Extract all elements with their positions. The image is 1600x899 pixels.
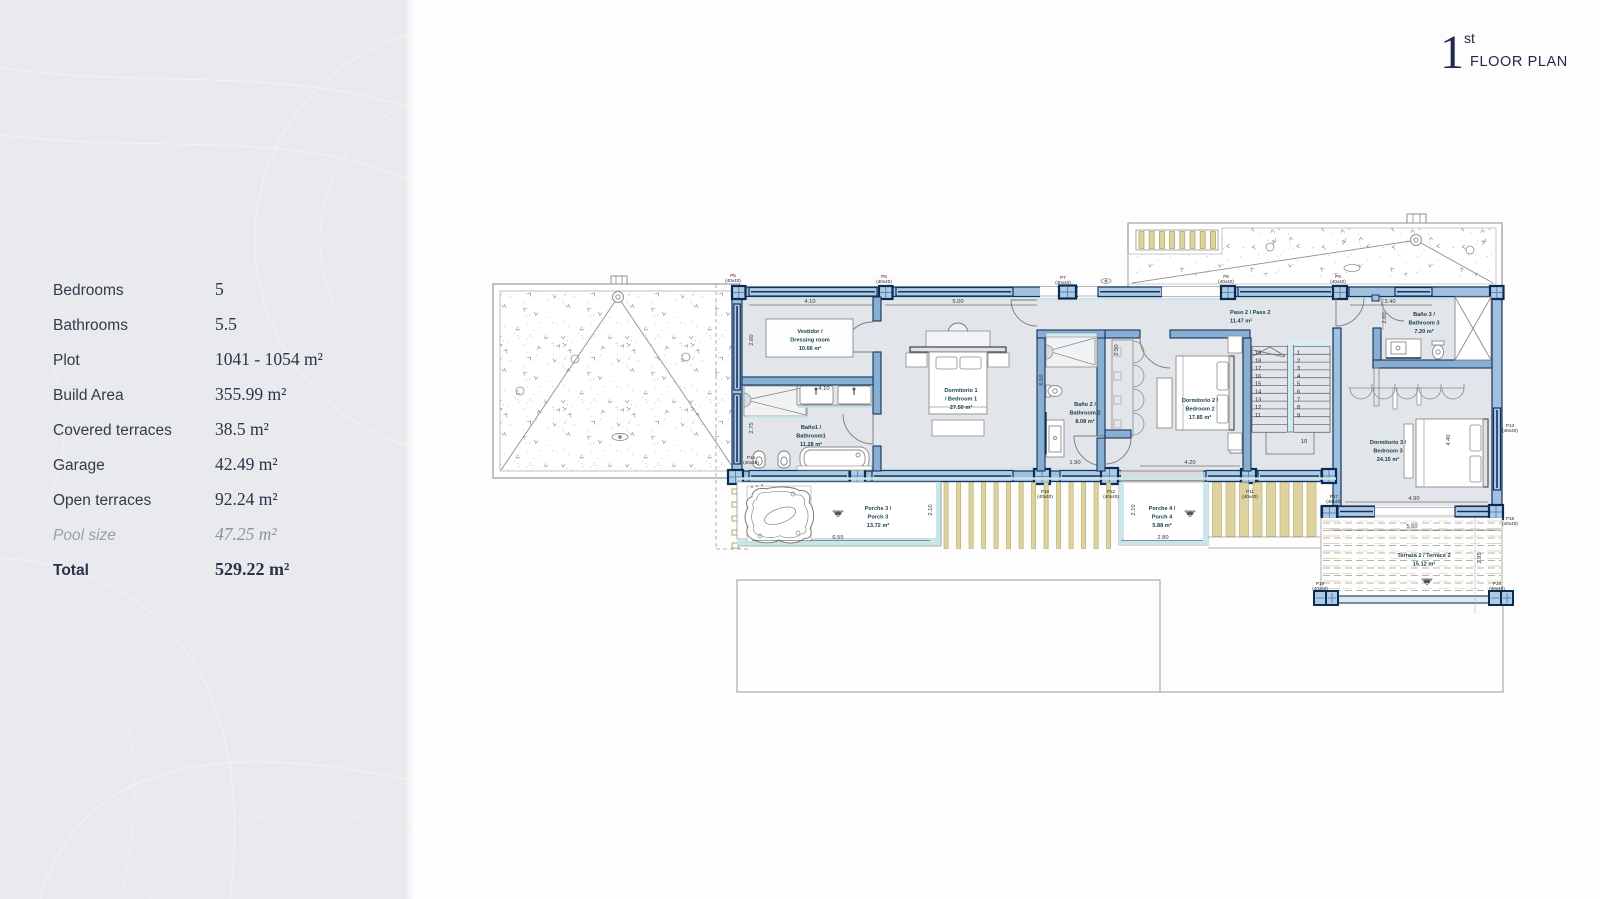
svg-text:11.28 m²: 11.28 m² bbox=[800, 441, 822, 448]
svg-text:7: 7 bbox=[1297, 397, 1300, 403]
svg-text:4.90: 4.90 bbox=[1408, 496, 1419, 502]
svg-text:Open terraces: Open terraces bbox=[53, 492, 151, 509]
svg-text:Bathroom1: Bathroom1 bbox=[796, 434, 826, 440]
svg-text:6.55: 6.55 bbox=[832, 535, 843, 541]
svg-text:1: 1 bbox=[1440, 26, 1464, 79]
svg-text:5: 5 bbox=[1297, 382, 1300, 388]
svg-text:12: 12 bbox=[1255, 405, 1261, 411]
svg-text:Covered terraces: Covered terraces bbox=[53, 422, 172, 439]
svg-text:(40x40): (40x40) bbox=[1103, 494, 1119, 499]
svg-text:Dormitorio 1: Dormitorio 1 bbox=[944, 388, 977, 394]
svg-text:(40x40): (40x40) bbox=[1502, 428, 1518, 433]
svg-text:10.66 m²: 10.66 m² bbox=[799, 345, 822, 352]
svg-text:8: 8 bbox=[1297, 405, 1300, 411]
svg-text:1.90: 1.90 bbox=[1069, 460, 1080, 466]
svg-text:4.40: 4.40 bbox=[1446, 434, 1452, 445]
svg-text:Build Area: Build Area bbox=[53, 387, 124, 404]
svg-text:355.99 m²: 355.99 m² bbox=[215, 384, 286, 404]
svg-text:(40x40): (40x40) bbox=[1055, 280, 1071, 285]
svg-text:Garage: Garage bbox=[53, 457, 105, 474]
svg-text:(40x40): (40x40) bbox=[1037, 494, 1053, 499]
svg-text:1041 - 1054 m²: 1041 - 1054 m² bbox=[215, 349, 323, 369]
svg-text:27.50 m²: 27.50 m² bbox=[950, 404, 973, 411]
svg-text:Vestidor /: Vestidor / bbox=[797, 329, 823, 335]
svg-text:2.75: 2.75 bbox=[749, 422, 755, 433]
svg-text:st: st bbox=[1464, 30, 1475, 46]
svg-text:92.24 m²: 92.24 m² bbox=[215, 489, 278, 509]
svg-text:8.08 m²: 8.08 m² bbox=[1075, 418, 1094, 425]
svg-text:(40x40): (40x40) bbox=[743, 460, 759, 465]
svg-text:4.10: 4.10 bbox=[818, 386, 829, 392]
svg-text:11: 11 bbox=[1255, 413, 1261, 419]
svg-text:5.00: 5.00 bbox=[952, 299, 963, 305]
svg-text:4: 4 bbox=[1297, 374, 1300, 380]
svg-text:Paso 2 / Pass 2: Paso 2 / Pass 2 bbox=[1230, 310, 1270, 316]
svg-text:Dormitorio 3 /: Dormitorio 3 / bbox=[1370, 440, 1407, 446]
svg-text:47.25 m²: 47.25 m² bbox=[215, 524, 277, 544]
svg-text:18: 18 bbox=[1255, 358, 1261, 364]
svg-text:529.22 m²: 529.22 m² bbox=[215, 559, 289, 579]
svg-text:13: 13 bbox=[1255, 397, 1261, 403]
svg-text:13.72 m²: 13.72 m² bbox=[867, 522, 890, 529]
svg-text:Total: Total bbox=[53, 562, 89, 579]
svg-text:16: 16 bbox=[1255, 374, 1261, 380]
svg-text:11.47 m²: 11.47 m² bbox=[1230, 318, 1252, 325]
svg-text:(40x40): (40x40) bbox=[1242, 494, 1258, 499]
svg-text:17: 17 bbox=[1255, 366, 1261, 372]
svg-text:1: 1 bbox=[1297, 351, 1300, 357]
svg-text:(40x40): (40x40) bbox=[1326, 499, 1342, 504]
svg-text:2.10: 2.10 bbox=[1131, 504, 1137, 515]
svg-text:2.80: 2.80 bbox=[1157, 535, 1168, 541]
svg-text:2.50: 2.50 bbox=[1114, 344, 1120, 355]
svg-text:Porche 4 /: Porche 4 / bbox=[1149, 506, 1176, 512]
svg-text:Baño1 /: Baño1 / bbox=[801, 425, 822, 431]
svg-text:Bedroom 2: Bedroom 2 bbox=[1185, 407, 1214, 413]
svg-text:(40x40): (40x40) bbox=[1489, 586, 1505, 591]
svg-text:(40x40): (40x40) bbox=[1330, 279, 1346, 284]
svg-text:(40x40): (40x40) bbox=[1312, 586, 1328, 591]
svg-text:(40x40): (40x40) bbox=[1218, 279, 1234, 284]
svg-text:6.50: 6.50 bbox=[1039, 374, 1045, 385]
svg-text:3.40: 3.40 bbox=[1384, 299, 1395, 305]
svg-text:14: 14 bbox=[1255, 390, 1261, 396]
svg-text:Bathroom 3: Bathroom 3 bbox=[1408, 321, 1439, 327]
svg-text:2.60: 2.60 bbox=[749, 334, 755, 345]
svg-text:3: 3 bbox=[1297, 366, 1300, 372]
svg-text:Porch 3: Porch 3 bbox=[868, 515, 889, 521]
svg-text:(40x40): (40x40) bbox=[1502, 521, 1518, 526]
svg-text:Porch 4: Porch 4 bbox=[1152, 515, 1173, 521]
svg-text:/ Bedroom 1: / Bedroom 1 bbox=[945, 397, 977, 403]
svg-text:Dressing room: Dressing room bbox=[790, 338, 830, 344]
svg-text:42.49 m²: 42.49 m² bbox=[215, 454, 278, 474]
svg-text:Plot: Plot bbox=[53, 352, 80, 369]
svg-text:Bathroom 2: Bathroom 2 bbox=[1069, 411, 1100, 417]
svg-text:2.60: 2.60 bbox=[1382, 312, 1388, 323]
svg-text:7.20 m²: 7.20 m² bbox=[1414, 328, 1433, 335]
svg-text:10: 10 bbox=[1301, 439, 1307, 445]
svg-text:15: 15 bbox=[1255, 382, 1261, 388]
svg-text:17.85 m²: 17.85 m² bbox=[1189, 414, 1212, 421]
svg-text:5.88 m²: 5.88 m² bbox=[1152, 522, 1171, 529]
svg-text:4.10: 4.10 bbox=[804, 299, 815, 305]
svg-text:5.5: 5.5 bbox=[215, 314, 237, 334]
svg-text:5: 5 bbox=[215, 279, 224, 299]
svg-text:Bedrooms: Bedrooms bbox=[53, 282, 124, 299]
svg-text:9: 9 bbox=[1297, 413, 1300, 419]
svg-text:4.20: 4.20 bbox=[1184, 460, 1195, 466]
svg-text:(40x40): (40x40) bbox=[876, 279, 892, 284]
svg-text:2: 2 bbox=[1297, 358, 1300, 364]
svg-text:15.12 m²: 15.12 m² bbox=[1413, 561, 1436, 568]
svg-text:6: 6 bbox=[1297, 390, 1300, 396]
svg-text:2.95: 2.95 bbox=[1477, 552, 1483, 563]
svg-text:38.5 m²: 38.5 m² bbox=[215, 419, 269, 439]
svg-text:5.60: 5.60 bbox=[1406, 524, 1417, 530]
svg-text:24.15 m²: 24.15 m² bbox=[1377, 456, 1400, 463]
svg-text:Dormitorio 2 /: Dormitorio 2 / bbox=[1182, 398, 1219, 404]
svg-text:Bedroom 3: Bedroom 3 bbox=[1373, 449, 1402, 455]
svg-text:Porche 3 /: Porche 3 / bbox=[865, 506, 892, 512]
svg-text:Bathrooms: Bathrooms bbox=[53, 317, 128, 334]
svg-text:Baño 3 /: Baño 3 / bbox=[1413, 312, 1435, 318]
svg-text:Terraza 2 / Terrace 2: Terraza 2 / Terrace 2 bbox=[1397, 553, 1450, 559]
svg-text:2.10: 2.10 bbox=[928, 504, 934, 515]
svg-text:(40x40): (40x40) bbox=[725, 278, 741, 283]
svg-text:Pool size: Pool size bbox=[53, 527, 116, 544]
svg-text:Baño 2 /: Baño 2 / bbox=[1074, 402, 1096, 408]
svg-text:FLOOR PLAN: FLOOR PLAN bbox=[1470, 54, 1568, 70]
svg-text:19: 19 bbox=[1255, 351, 1261, 357]
